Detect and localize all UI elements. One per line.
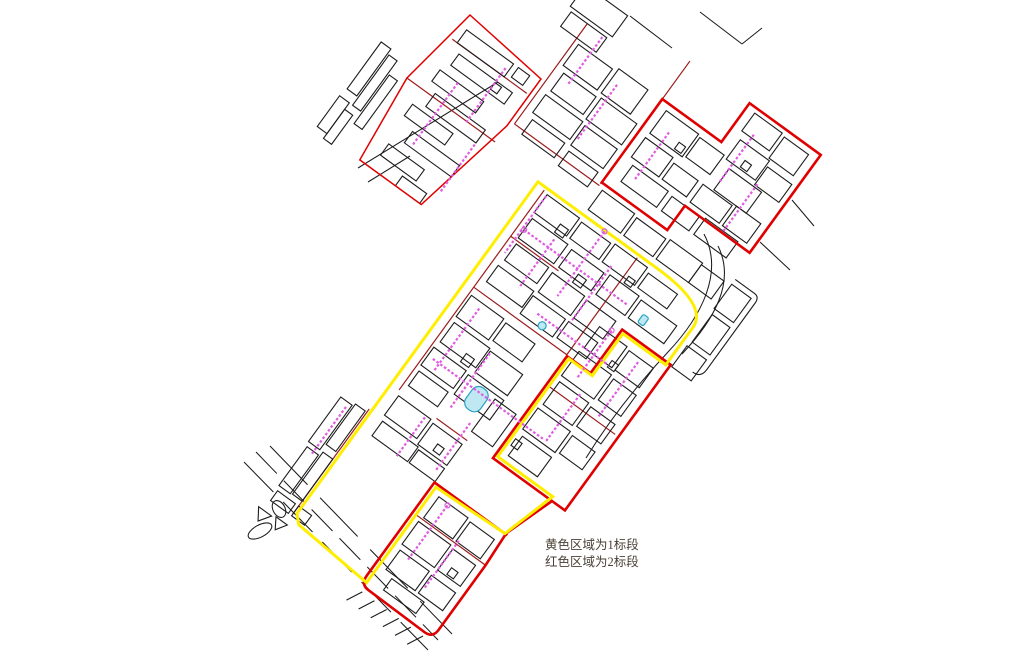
building-outline [586, 98, 637, 145]
hatch-tick [346, 587, 362, 605]
building-outline [602, 244, 647, 285]
legend-line-red-section: 红色区域为2标段 [545, 554, 639, 569]
hatch-tick [359, 596, 375, 614]
building-outline [408, 371, 448, 407]
site-plan-drawing: 黄色区域为1标段 红色区域为2标段 [0, 0, 1023, 651]
building-outline [533, 95, 583, 140]
legend: 黄色区域为1标段 红色区域为2标段 [545, 537, 639, 569]
building-outline [596, 275, 639, 316]
roads-layer [244, 12, 814, 650]
building-outline [418, 423, 462, 465]
building-outline [347, 42, 391, 96]
building-outline [755, 167, 792, 202]
building-outline [317, 96, 349, 134]
road-line [586, 234, 712, 458]
annotation-label-leader [441, 145, 475, 192]
building-outline [433, 444, 444, 455]
annotation-layer [206, 0, 786, 611]
building-outline [561, 12, 607, 52]
road-line [630, 16, 672, 48]
building-outline [563, 44, 612, 90]
building-outline [522, 120, 565, 158]
red-block-north-east [602, 60, 821, 277]
hatch-tick [407, 631, 423, 649]
hatch-tick [371, 605, 387, 623]
annotation-label-leader [723, 184, 757, 231]
building-outline [628, 300, 677, 344]
building-outline [404, 131, 459, 176]
building-outline [451, 54, 513, 104]
building-outline [570, 0, 627, 37]
annotation-label-leader [598, 362, 638, 417]
building-outline [386, 550, 429, 591]
building-outline [656, 240, 702, 283]
road-line [682, 246, 724, 354]
building-outline [353, 55, 398, 111]
building-outline [538, 273, 584, 316]
building-outline [426, 94, 486, 143]
road-line [792, 200, 814, 226]
building-outline [372, 421, 418, 461]
building-outline [354, 75, 397, 129]
building-outline [692, 315, 730, 355]
building-outline [511, 67, 529, 85]
annotation-label-leader [524, 230, 628, 305]
building-outline [588, 190, 634, 233]
block-edge-rounded [676, 279, 759, 378]
landscape-ellipse [246, 520, 275, 543]
annotation-label-leader [397, 417, 425, 456]
section2-red-boundary [149, 0, 822, 651]
site-frame [102, 0, 848, 651]
annotation-label-leader [466, 68, 506, 123]
building-outline [558, 151, 598, 187]
annotation-label-leader [577, 85, 617, 140]
annotation-label-leader [537, 314, 608, 366]
building-outline [518, 218, 568, 263]
road-line [760, 242, 790, 270]
parcel-redline [474, 287, 567, 355]
building-outline [571, 126, 617, 169]
building-outline [690, 184, 732, 223]
parcel-redline [514, 24, 587, 124]
cad-site-plan-viewport: 黄色区域为1标段 红色区域为2标段 [0, 0, 1023, 651]
road-line [700, 12, 742, 44]
hatch-tick [383, 614, 399, 632]
parcel-redline [549, 386, 615, 434]
small-pool [637, 314, 649, 326]
building-outline [551, 73, 596, 114]
legend-line-yellow-section: 黄色区域为1标段 [545, 537, 639, 552]
building-outline [493, 323, 535, 362]
parcel-redline [416, 515, 486, 566]
road-line [368, 156, 410, 182]
buildings-layer [120, 0, 843, 651]
pond-circle [537, 320, 548, 331]
parcel-redline [399, 190, 544, 390]
building-outline [570, 222, 611, 259]
building-outline [323, 109, 352, 144]
road-line [742, 28, 762, 44]
